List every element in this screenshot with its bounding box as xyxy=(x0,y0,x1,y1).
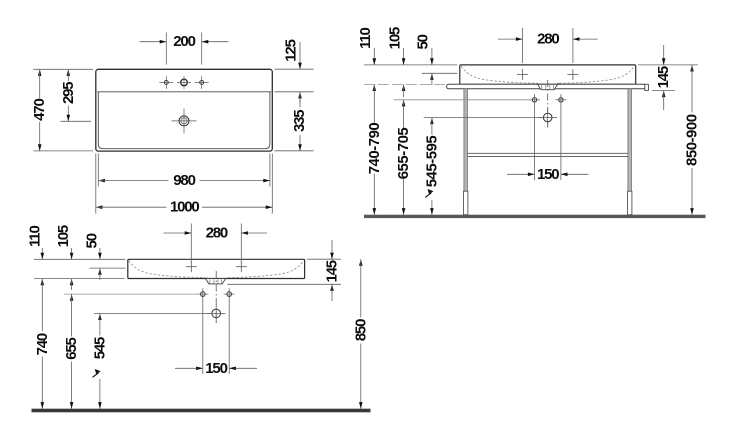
svg-text:280: 280 xyxy=(537,31,559,48)
svg-text:545-595: 545-595 xyxy=(423,136,440,188)
svg-text:335: 335 xyxy=(291,110,308,132)
svg-text:50: 50 xyxy=(415,34,432,49)
svg-text:150: 150 xyxy=(205,360,227,377)
svg-text:1000: 1000 xyxy=(170,199,199,216)
svg-text:850-900: 850-900 xyxy=(684,114,701,166)
svg-text:850: 850 xyxy=(352,319,369,341)
svg-text:545: 545 xyxy=(91,337,108,359)
svg-text:105: 105 xyxy=(55,225,72,247)
svg-text:105: 105 xyxy=(386,27,403,49)
svg-text:110: 110 xyxy=(26,226,43,247)
svg-text:150: 150 xyxy=(537,166,559,183)
svg-text:655: 655 xyxy=(63,337,80,359)
svg-text:280: 280 xyxy=(206,225,228,242)
svg-text:125: 125 xyxy=(283,39,300,61)
svg-text:145: 145 xyxy=(324,260,341,282)
svg-text:200: 200 xyxy=(173,33,195,50)
svg-text:655-705: 655-705 xyxy=(395,128,412,180)
svg-text:980: 980 xyxy=(173,172,195,189)
svg-text:740: 740 xyxy=(34,333,51,355)
svg-text:295: 295 xyxy=(60,82,77,104)
svg-text:145: 145 xyxy=(655,66,672,88)
svg-text:740-790: 740-790 xyxy=(366,123,383,175)
svg-text:470: 470 xyxy=(31,99,48,121)
svg-text:50: 50 xyxy=(83,233,100,248)
svg-text:110: 110 xyxy=(357,27,374,48)
